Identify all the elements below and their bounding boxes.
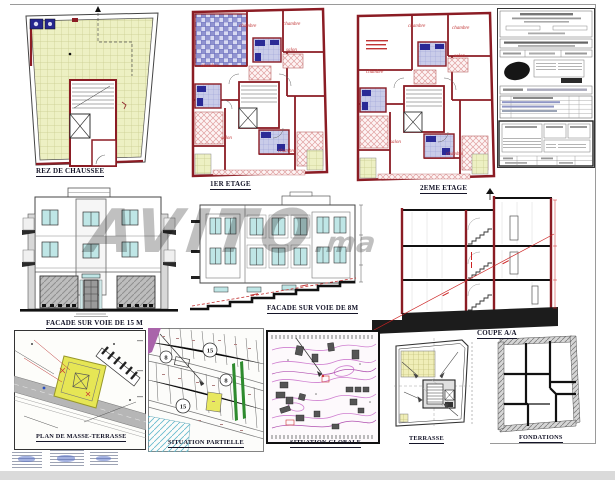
coupe-drawing (372, 186, 558, 336)
room-label: chambre (408, 24, 425, 29)
label-plan-de-masse: PLAN DE MASSE-TERRASSE (36, 434, 126, 442)
approval-stamp (90, 452, 118, 466)
plan-2eme-drawing (350, 6, 500, 184)
watermark-text: AVITO (84, 197, 321, 267)
plan-1er-drawing (183, 4, 335, 180)
room-label: chambre (239, 24, 256, 29)
label-situation-partielle: SITUATION PARTIELLE (168, 440, 244, 448)
sheet-border-bottom-right (490, 443, 596, 444)
sheet-border-top (10, 4, 595, 5)
label-coupe-aa: COUPE A/A (477, 330, 517, 339)
plan-1er-etage: chambre chambre chambre salon salon cham… (183, 4, 335, 180)
room-label: salon (286, 48, 297, 53)
masse-drawing (14, 330, 146, 450)
section-coupe-aa (372, 186, 558, 336)
sheet-border-right (595, 4, 596, 444)
plan-fondations (492, 330, 594, 446)
room-label: salon (390, 140, 401, 145)
label-facade-15m: FACADE SUR VOIE DE 15 M (46, 320, 143, 329)
fondations-drawing (492, 330, 594, 446)
room-label: chambre (201, 64, 218, 69)
circled-number: 15 (180, 403, 187, 410)
globale-drawing (266, 330, 380, 448)
map-situation-partielle: 8 15 8 15 (148, 328, 264, 452)
label-fondations: FONDATIONS (519, 435, 563, 443)
approval-stamp (50, 450, 84, 468)
plan-sheet: chambre chambre chambre salon salon cham… (0, 0, 615, 480)
room-label: chambre (278, 149, 295, 154)
plan-2eme-etage: chambre chambre salon salon chambre cham… (350, 6, 500, 184)
room-label: salon (454, 54, 465, 59)
room-label: chambre (283, 22, 300, 27)
page-edge (0, 471, 615, 480)
room-label: chambre (452, 26, 469, 31)
terrasse-drawing (388, 334, 488, 440)
room-label: chambre (366, 70, 383, 75)
watermark: AVITO.ma (84, 202, 381, 262)
map-situation-globale (266, 330, 380, 448)
partielle-drawing: 8 15 8 15 (148, 328, 264, 452)
plan-rez-de-chaussee (12, 6, 176, 170)
label-rez-de-chaussee: REZ DE CHAUSSEE (36, 168, 104, 177)
room-label: salon (221, 136, 232, 141)
watermark-suffix: .ma (313, 226, 379, 259)
plan-rez-drawing (12, 6, 176, 170)
label-terrasse: TERRASSE (409, 436, 444, 444)
title-block (497, 8, 595, 168)
label-2eme-etage: 2EME ETAGE (420, 185, 467, 194)
plan-terrasse (388, 334, 488, 440)
label-situation-globale: SITUATION GLOBALE (290, 440, 361, 448)
room-label: chambre (446, 152, 463, 157)
label-facade-8m: FACADE SUR VOIE DE 8M (267, 305, 358, 314)
label-1er-etage: 1ER ETAGE (210, 181, 251, 190)
circled-number: 15 (207, 347, 214, 354)
approval-stamp (12, 452, 42, 468)
title-block-drawing (497, 8, 595, 168)
site-plan-masse (14, 330, 146, 450)
